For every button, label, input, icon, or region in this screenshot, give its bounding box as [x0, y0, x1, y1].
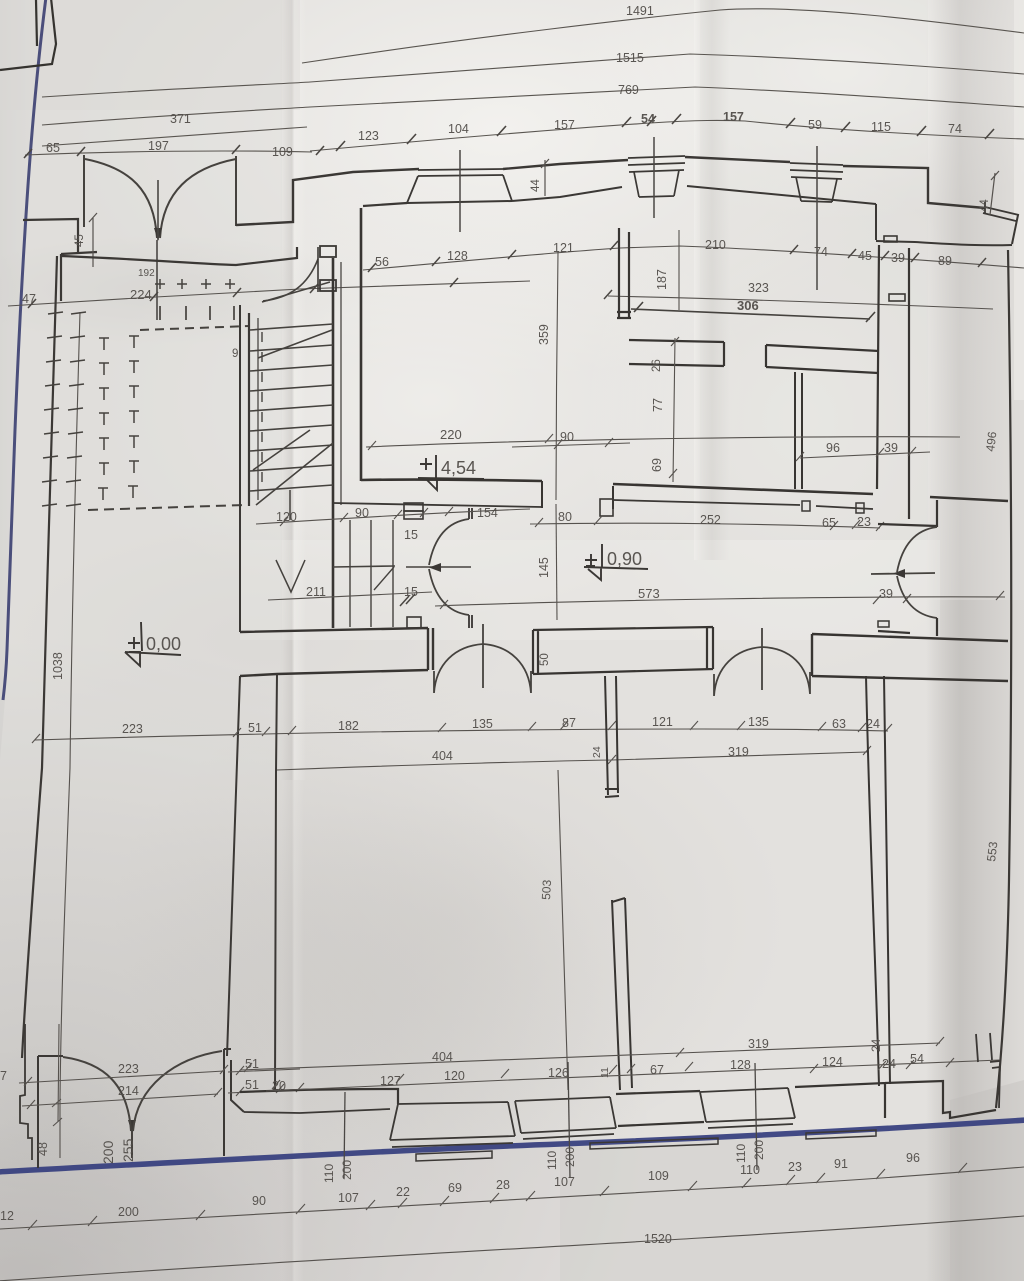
svg-text:135: 135 — [472, 717, 493, 731]
svg-text:124: 124 — [822, 1055, 843, 1069]
svg-text:48: 48 — [36, 1142, 50, 1156]
svg-text:51: 51 — [245, 1078, 259, 1092]
svg-text:224: 224 — [130, 287, 152, 302]
svg-text:120: 120 — [276, 510, 297, 524]
svg-text:15: 15 — [404, 585, 418, 599]
svg-text:11: 11 — [599, 1067, 611, 1078]
svg-text:0,90: 0,90 — [607, 549, 642, 569]
svg-text:80: 80 — [558, 510, 572, 524]
svg-text:56: 56 — [375, 255, 389, 269]
svg-text:145: 145 — [537, 557, 551, 578]
svg-text:63: 63 — [832, 717, 846, 731]
svg-text:90: 90 — [252, 1194, 266, 1208]
svg-text:24: 24 — [882, 1057, 896, 1071]
svg-text:371: 371 — [170, 112, 191, 126]
svg-text:128: 128 — [447, 249, 468, 263]
svg-text:45: 45 — [858, 249, 872, 263]
svg-text:65: 65 — [46, 141, 60, 155]
svg-text:214: 214 — [118, 1084, 139, 1098]
svg-text:200: 200 — [752, 1140, 766, 1160]
svg-text:110: 110 — [734, 1144, 748, 1163]
svg-text:200: 200 — [100, 1140, 116, 1164]
svg-text:0,00: 0,00 — [146, 634, 181, 654]
svg-text:74: 74 — [948, 122, 962, 136]
svg-text:223: 223 — [118, 1062, 139, 1076]
svg-text:306: 306 — [737, 298, 759, 313]
svg-text:54: 54 — [910, 1052, 924, 1066]
svg-text:121: 121 — [652, 715, 673, 729]
svg-text:23: 23 — [857, 515, 871, 529]
svg-text:135: 135 — [748, 715, 769, 729]
svg-text:110: 110 — [740, 1163, 760, 1177]
svg-text:1515: 1515 — [616, 51, 644, 65]
svg-text:4,54: 4,54 — [441, 458, 476, 478]
svg-text:39: 39 — [879, 587, 893, 601]
svg-text:9: 9 — [232, 348, 238, 360]
svg-text:210: 210 — [705, 238, 726, 252]
svg-text:39: 39 — [891, 251, 905, 265]
svg-text:109: 109 — [648, 1169, 669, 1183]
svg-text:200: 200 — [340, 1160, 354, 1180]
svg-text:110: 110 — [545, 1151, 559, 1170]
svg-text:24: 24 — [869, 1038, 883, 1052]
svg-text:54: 54 — [641, 112, 655, 126]
svg-text:197: 197 — [148, 139, 169, 153]
svg-text:200: 200 — [563, 1147, 577, 1167]
svg-text:769: 769 — [618, 83, 639, 97]
svg-text:15: 15 — [404, 528, 418, 542]
svg-text:211: 211 — [306, 585, 326, 599]
svg-text:22: 22 — [396, 1185, 410, 1199]
svg-text:109: 109 — [272, 145, 293, 159]
svg-text:200: 200 — [118, 1205, 139, 1219]
svg-text:59: 59 — [808, 118, 822, 132]
svg-text:44: 44 — [530, 179, 542, 192]
svg-text:104: 104 — [448, 122, 469, 136]
svg-text:319: 319 — [728, 745, 749, 759]
svg-text:1038: 1038 — [51, 652, 65, 680]
svg-text:252: 252 — [700, 513, 721, 527]
svg-text:47: 47 — [22, 292, 36, 306]
svg-text:110: 110 — [322, 1164, 336, 1183]
svg-text:496: 496 — [983, 430, 999, 452]
svg-text:157: 157 — [723, 110, 744, 124]
svg-text:77: 77 — [651, 398, 665, 412]
svg-text:223: 223 — [122, 722, 143, 736]
svg-text:91: 91 — [834, 1157, 848, 1171]
svg-text:96: 96 — [906, 1151, 920, 1165]
svg-text:154: 154 — [477, 506, 498, 520]
svg-text:28: 28 — [496, 1178, 510, 1192]
svg-text:123: 123 — [358, 129, 379, 143]
svg-text:12: 12 — [0, 1209, 14, 1223]
svg-text:573: 573 — [638, 586, 660, 601]
svg-text:23: 23 — [788, 1160, 802, 1174]
svg-text:39: 39 — [884, 441, 898, 455]
svg-text:107: 107 — [338, 1191, 359, 1205]
svg-text:319: 319 — [748, 1037, 769, 1051]
svg-text:96: 96 — [826, 441, 840, 455]
svg-text:44: 44 — [979, 199, 991, 212]
svg-text:553: 553 — [984, 840, 1000, 862]
svg-text:359: 359 — [537, 324, 551, 345]
svg-text:126: 126 — [548, 1066, 569, 1080]
svg-text:24: 24 — [591, 746, 603, 758]
svg-text:65: 65 — [822, 516, 836, 530]
svg-text:187: 187 — [655, 269, 669, 290]
svg-text:127: 127 — [380, 1074, 401, 1088]
svg-text:121: 121 — [553, 241, 574, 255]
svg-text:323: 323 — [748, 281, 769, 295]
svg-text:69: 69 — [448, 1181, 462, 1195]
svg-text:120: 120 — [444, 1069, 465, 1083]
svg-text:90: 90 — [560, 430, 574, 444]
svg-text:45: 45 — [74, 234, 86, 247]
svg-text:50: 50 — [539, 653, 551, 666]
svg-text:7: 7 — [0, 1069, 7, 1083]
svg-text:503: 503 — [539, 879, 554, 900]
svg-text:1520: 1520 — [644, 1232, 672, 1246]
svg-text:192: 192 — [138, 268, 155, 279]
svg-text:255: 255 — [120, 1138, 136, 1162]
svg-text:115: 115 — [871, 120, 891, 134]
svg-text:89: 89 — [938, 254, 952, 268]
svg-text:69: 69 — [650, 458, 664, 472]
svg-text:1491: 1491 — [626, 4, 654, 18]
svg-text:26: 26 — [651, 359, 663, 372]
svg-text:87: 87 — [562, 716, 576, 730]
svg-text:51: 51 — [248, 721, 262, 735]
svg-text:74: 74 — [814, 245, 828, 259]
svg-text:107: 107 — [554, 1175, 575, 1189]
svg-text:157: 157 — [554, 118, 575, 132]
svg-text:67: 67 — [650, 1063, 664, 1077]
svg-text:220: 220 — [440, 427, 462, 442]
svg-text:404: 404 — [432, 749, 453, 763]
svg-text:128: 128 — [730, 1058, 751, 1072]
svg-text:182: 182 — [338, 719, 359, 733]
svg-text:90: 90 — [355, 506, 369, 520]
svg-text:404: 404 — [432, 1050, 453, 1064]
